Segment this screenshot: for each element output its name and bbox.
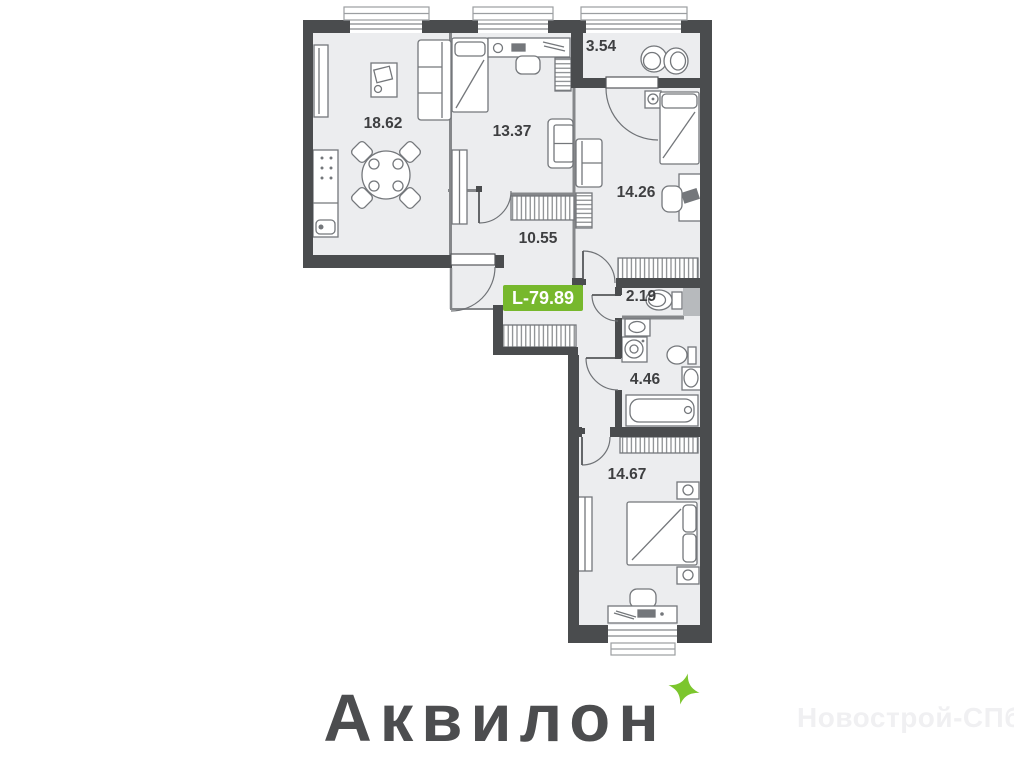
tv-unit: [371, 63, 397, 97]
floor-plan: 18.62 13.37 3.54 14.26 10.55 2.19 4.46 1…: [0, 0, 1014, 768]
desk-bedroom-top: [488, 38, 570, 57]
bed-single-right: [660, 92, 699, 164]
wardrobe-bedroom-right-south: [618, 258, 698, 279]
chair-bedroom-top: [516, 56, 540, 74]
sink-bathroom-small: [625, 319, 650, 336]
toilet-ensuite: [664, 48, 688, 74]
nightstand-lamp: [645, 91, 661, 108]
chair-bedroom-bottom: [630, 589, 656, 608]
floor-plan-page: 18.62 13.37 3.54 14.26 10.55 2.19 4.46 1…: [0, 0, 1014, 768]
bed-single-top: [452, 38, 488, 112]
room-label-kitchen-living: 18.62: [364, 115, 403, 132]
fridge: [314, 45, 328, 117]
bathtub: [626, 395, 698, 426]
toilet-bathroom: [667, 346, 696, 364]
room-label-bathroom: 4.46: [630, 371, 661, 388]
armchair-bedroom-top: [548, 119, 573, 168]
wardrobe-bedroom-top: [452, 150, 467, 224]
wardrobe-bedroom-bottom: [620, 437, 698, 453]
cabinet-bedroom-bottom: [578, 497, 592, 571]
watermark: Новострой-СПб: [797, 702, 1014, 734]
sink-ensuite: [641, 46, 667, 72]
kitchen-counter: [313, 150, 338, 237]
wardrobe-bedroom-right-west: [576, 193, 592, 228]
room-label-hallway: 10.55: [519, 230, 558, 247]
wardrobe-bedroom-top-ne: [555, 58, 571, 91]
sparkle-icon: [666, 672, 702, 708]
sparkle-star: [666, 672, 702, 708]
total-area-badge: L-79.89: [503, 285, 583, 311]
nightstand-bottom: [677, 567, 699, 584]
desk-bedroom-bottom: [608, 606, 677, 623]
room-label-bedroom-bottom: 14.67: [608, 466, 647, 483]
room-label-bedroom-right: 14.26: [617, 184, 656, 201]
vent-duct: [683, 285, 700, 316]
wardrobe-hallway-shoe: [500, 325, 576, 347]
total-area-badge-label: L-79.89: [512, 288, 574, 308]
room-label-bedroom-top: 13.37: [493, 123, 532, 140]
nightstand-top: [677, 482, 699, 499]
washing-machine: [622, 337, 647, 362]
room-label-ensuite: 3.54: [586, 38, 617, 55]
sofa-living: [418, 40, 451, 120]
sink-bathroom: [682, 367, 701, 390]
bed-double: [627, 502, 697, 565]
chair-bedroom-right: [662, 186, 682, 212]
wardrobe-hallway: [511, 196, 574, 220]
room-label-wc: 2.19: [626, 288, 657, 305]
sofa-bedroom-right: [576, 139, 602, 187]
